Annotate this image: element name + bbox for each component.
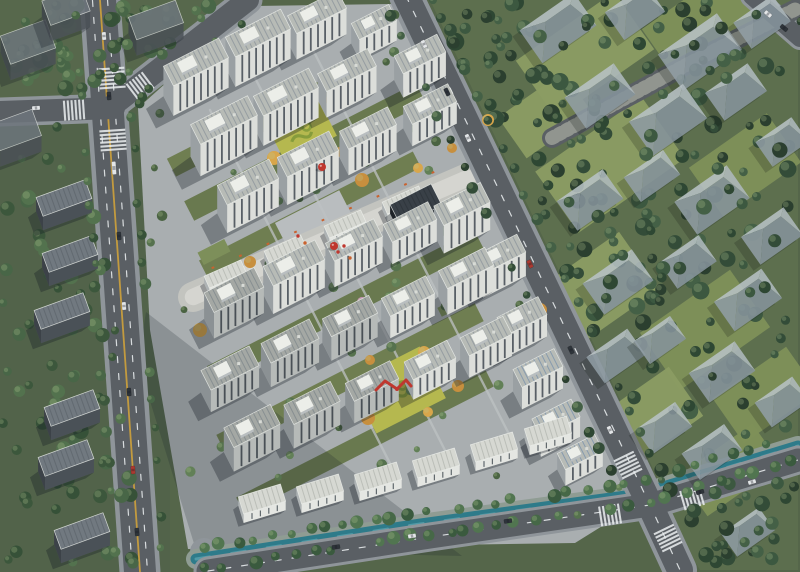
car [408,533,417,538]
car [107,92,112,100]
render-canvas [0,0,800,572]
car [504,518,513,523]
road-west-spur [0,108,114,112]
umbrella [303,241,306,244]
car [127,388,132,396]
car [102,32,107,40]
car [117,232,122,240]
masterplan-svg [0,0,800,572]
car [332,544,341,549]
aerial-masterplan-render [0,0,800,572]
car [131,466,136,474]
red-sculpture [395,387,399,391]
car [111,161,116,174]
car [122,302,127,310]
umbrella [342,244,345,247]
umbrella [336,250,339,253]
car [135,528,140,536]
car [32,106,40,111]
umbrella [296,234,299,237]
umbrella [348,256,351,259]
